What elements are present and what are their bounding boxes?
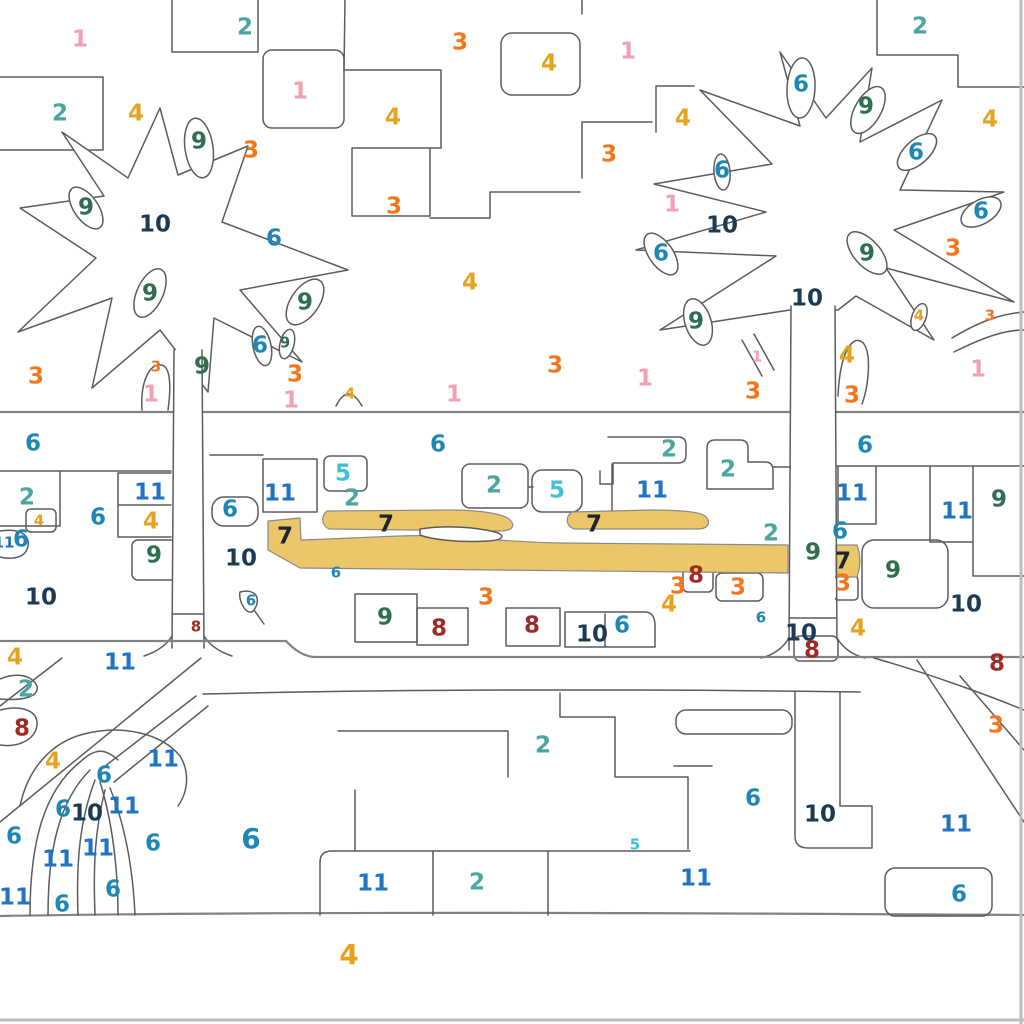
region-number-6[interactable]: 6	[614, 612, 630, 638]
region-number-2[interactable]: 2	[469, 869, 485, 895]
region-number-4[interactable]: 4	[462, 269, 478, 295]
region-number-3[interactable]: 3	[730, 574, 746, 600]
region-number-6[interactable]: 6	[105, 876, 121, 902]
region-number-2[interactable]: 2	[486, 472, 502, 498]
region-number-3[interactable]: 3	[844, 382, 860, 408]
region-number-6[interactable]: 6	[96, 762, 112, 788]
region-number-10[interactable]: 10	[71, 800, 103, 826]
region-number-6[interactable]: 6	[252, 332, 268, 358]
region-number-10[interactable]: 10	[25, 584, 57, 610]
region-number-3[interactable]: 3	[452, 29, 468, 55]
region-number-9[interactable]: 9	[191, 128, 207, 154]
region-number-1[interactable]: 1	[620, 38, 636, 64]
region-number-6[interactable]: 6	[832, 518, 848, 544]
region-number-3[interactable]: 3	[547, 352, 563, 378]
region-number-3[interactable]: 3	[386, 193, 402, 219]
region-number-3[interactable]: 3	[28, 363, 44, 389]
region-number-5[interactable]: 5	[549, 477, 565, 503]
region-number-7[interactable]: 7	[378, 511, 394, 537]
region-number-2[interactable]: 2	[661, 436, 677, 462]
region-number-8[interactable]: 8	[524, 612, 540, 638]
region-number-4[interactable]: 4	[128, 100, 144, 126]
region-number-11[interactable]: 11	[147, 746, 179, 772]
region-number-9[interactable]: 9	[688, 308, 704, 334]
region-number-10[interactable]: 10	[225, 545, 257, 571]
region-number-6[interactable]: 6	[13, 526, 29, 552]
region-number-4[interactable]: 4	[143, 508, 159, 534]
region-number-1[interactable]: 1	[143, 381, 159, 407]
region-number-3[interactable]: 3	[243, 137, 259, 163]
region-number-6[interactable]: 6	[222, 496, 238, 522]
region-number-11[interactable]: 11	[636, 477, 668, 503]
region-number-9[interactable]: 9	[280, 333, 290, 351]
region-number-4[interactable]: 4	[675, 105, 691, 131]
region-number-9[interactable]: 9	[297, 289, 313, 315]
region-number-4[interactable]: 4	[982, 106, 998, 132]
region-number-11[interactable]: 11	[940, 811, 972, 837]
region-number-5[interactable]: 5	[630, 835, 640, 853]
region-number-11[interactable]: 11	[941, 498, 973, 524]
region-number-3[interactable]: 3	[835, 570, 851, 596]
region-number-9[interactable]: 9	[142, 280, 158, 306]
region-number-1[interactable]: 1	[283, 387, 299, 413]
region-number-6[interactable]: 6	[756, 608, 766, 626]
region-number-6[interactable]: 6	[331, 563, 341, 581]
region-number-9[interactable]: 9	[859, 240, 875, 266]
region-number-11[interactable]: 11	[108, 793, 140, 819]
region-number-1[interactable]: 1	[752, 347, 762, 365]
region-number-6[interactable]: 6	[745, 785, 761, 811]
region-number-1[interactable]: 1	[970, 356, 986, 382]
region-number-6[interactable]: 6	[908, 139, 924, 165]
region-number-9[interactable]: 9	[146, 542, 162, 568]
region-number-10[interactable]: 10	[139, 211, 171, 237]
region-number-9[interactable]: 9	[78, 194, 94, 220]
region-number-2[interactable]: 2	[237, 14, 253, 40]
region-number-8[interactable]: 8	[804, 637, 820, 663]
region-number-9[interactable]: 9	[885, 557, 901, 583]
region-number-6[interactable]: 6	[145, 830, 161, 856]
region-number-11[interactable]: 11	[680, 865, 712, 891]
region-number-6[interactable]: 6	[246, 591, 256, 609]
region-number-6[interactable]: 6	[241, 822, 260, 855]
region-number-11[interactable]: 11	[357, 870, 389, 896]
region-number-2[interactable]: 2	[19, 484, 35, 510]
region-number-11[interactable]: 11	[82, 835, 114, 861]
region-number-7[interactable]: 7	[586, 511, 602, 537]
region-number-1[interactable]: 1	[637, 365, 653, 391]
region-number-6[interactable]: 6	[55, 796, 71, 822]
region-number-2[interactable]: 2	[344, 485, 360, 511]
region-number-3[interactable]: 3	[985, 306, 995, 324]
region-number-2[interactable]: 2	[18, 676, 34, 702]
region-number-2[interactable]: 2	[52, 100, 68, 126]
region-number-3[interactable]: 3	[745, 378, 761, 404]
region-number-4[interactable]: 4	[345, 384, 355, 402]
region-number-6[interactable]: 6	[951, 881, 967, 907]
region-number-6[interactable]: 6	[430, 431, 446, 457]
region-number-2[interactable]: 2	[763, 520, 779, 546]
region-number-10[interactable]: 10	[576, 621, 608, 647]
region-number-1[interactable]: 1	[446, 381, 462, 407]
region-number-6[interactable]: 6	[714, 157, 730, 183]
coloring-canvas[interactable]: 1212493341433416626964610931094391069943…	[0, 0, 1024, 1024]
region-number-6[interactable]: 6	[653, 240, 669, 266]
region-number-9[interactable]: 9	[377, 604, 393, 630]
region-number-4[interactable]: 4	[661, 591, 677, 617]
region-number-10[interactable]: 10	[950, 591, 982, 617]
garden-outlines	[20, 692, 992, 916]
region-number-6[interactable]: 6	[54, 891, 70, 917]
region-number-11[interactable]: 11	[264, 480, 296, 506]
region-number-9[interactable]: 9	[991, 486, 1007, 512]
region-number-6[interactable]: 6	[25, 430, 41, 456]
region-number-10[interactable]: 10	[706, 212, 738, 238]
region-number-1[interactable]: 1	[72, 26, 88, 52]
region-number-6[interactable]: 6	[266, 225, 282, 251]
region-number-11[interactable]: 11	[42, 846, 74, 872]
region-number-3[interactable]: 3	[287, 361, 303, 387]
region-number-8[interactable]: 8	[688, 562, 704, 588]
region-number-2[interactable]: 2	[720, 456, 736, 482]
region-number-9[interactable]: 9	[805, 539, 821, 565]
region-number-10[interactable]: 10	[804, 801, 836, 827]
region-number-3[interactable]: 3	[151, 357, 161, 375]
region-number-2[interactable]: 2	[535, 732, 551, 758]
region-number-9[interactable]: 9	[858, 93, 874, 119]
region-number-8[interactable]: 8	[989, 650, 1005, 676]
region-number-4[interactable]: 4	[839, 342, 855, 368]
region-number-9[interactable]: 9	[194, 353, 210, 379]
region-number-4[interactable]: 4	[850, 615, 866, 641]
region-number-8[interactable]: 8	[191, 617, 201, 635]
ground-outlines	[0, 641, 1024, 916]
region-number-3[interactable]: 3	[945, 235, 961, 261]
region-number-4[interactable]: 4	[385, 104, 401, 130]
region-number-6[interactable]: 6	[6, 823, 22, 849]
region-number-1[interactable]: 1	[292, 78, 308, 104]
region-number-11[interactable]: 11	[836, 480, 868, 506]
region-number-2[interactable]: 2	[912, 13, 928, 39]
region-number-6[interactable]: 6	[857, 432, 873, 458]
paint-by-number-app: 1212493341433416626964610931094391069943…	[0, 0, 1024, 1024]
region-number-4[interactable]: 4	[339, 938, 358, 971]
region-number-7[interactable]: 7	[277, 523, 293, 549]
region-number-3[interactable]: 3	[478, 584, 494, 610]
region-number-5[interactable]: 5	[335, 460, 351, 486]
region-number-4[interactable]: 4	[45, 748, 61, 774]
region-number-10[interactable]: 10	[791, 285, 823, 311]
region-number-6[interactable]: 6	[973, 198, 989, 224]
region-number-4[interactable]: 4	[914, 306, 924, 324]
region-number-8[interactable]: 8	[431, 615, 447, 641]
region-number-4[interactable]: 4	[34, 511, 44, 529]
region-number-3[interactable]: 3	[601, 141, 617, 167]
region-number-11[interactable]: 11	[134, 479, 166, 505]
region-number-1[interactable]: 1	[664, 191, 680, 217]
region-number-3[interactable]: 3	[988, 712, 1004, 738]
region-number-6[interactable]: 6	[793, 71, 809, 97]
region-number-4[interactable]: 4	[7, 644, 23, 670]
region-number-4[interactable]: 4	[541, 50, 557, 76]
region-number-11[interactable]: 11	[104, 649, 136, 675]
right-palm-crown	[636, 52, 1014, 349]
region-number-11[interactable]: 11	[0, 884, 31, 910]
region-number-6[interactable]: 6	[90, 504, 106, 530]
region-number-8[interactable]: 8	[14, 715, 30, 741]
